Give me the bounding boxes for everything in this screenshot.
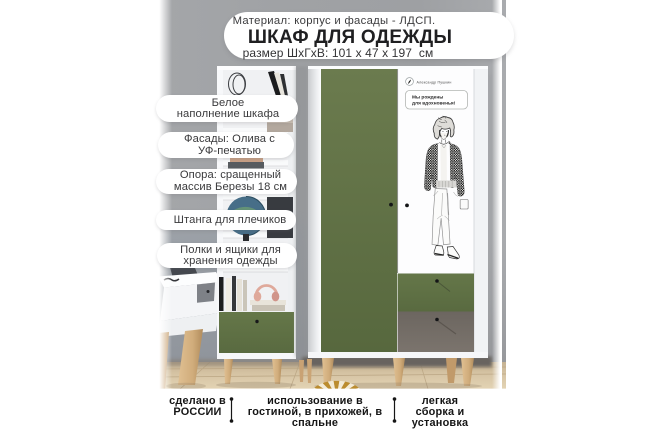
svg-text:Мы рождены: Мы рождены — [412, 94, 443, 100]
svg-text:Александр Пушкин: Александр Пушкин — [417, 81, 452, 85]
svg-text:для вдохновенья!: для вдохновенья! — [412, 101, 456, 107]
